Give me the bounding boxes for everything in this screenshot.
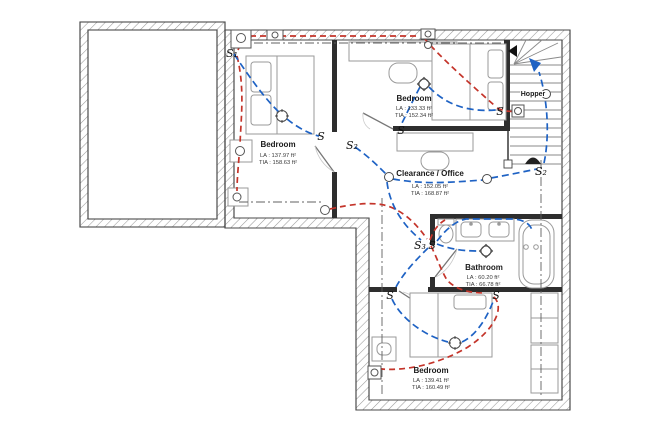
outlet-icon: [267, 30, 283, 40]
bed-bedroom-left: [246, 56, 314, 134]
switch-label: S: [317, 130, 325, 143]
svg-text:LA : 133.33 ft²: LA : 133.33 ft²: [396, 106, 432, 112]
outlet-icon: [236, 147, 245, 156]
svg-text:Bedroom: Bedroom: [413, 366, 448, 375]
switch-label: S₂: [535, 165, 547, 178]
switch-label: S₃: [414, 239, 426, 252]
switch-label: S: [496, 105, 504, 118]
svg-text:Bathroom: Bathroom: [465, 263, 503, 272]
wardrobe: [531, 293, 558, 393]
junction-icon: [483, 175, 492, 184]
switch-label: S: [386, 289, 394, 302]
switch-label: S: [428, 239, 436, 252]
svg-text:TIA : 66.78 ft²: TIA : 66.78 ft²: [466, 282, 501, 288]
switch-label: S: [397, 124, 405, 137]
desk-bedroom-bottom: [372, 337, 396, 361]
switch-label: S₁: [226, 47, 238, 60]
outlet-icon: [368, 366, 381, 379]
outlet-icon: [233, 193, 241, 201]
bathtub: [519, 220, 554, 288]
switch-label: S₂: [346, 139, 358, 152]
svg-text:Clearance / Office: Clearance / Office: [396, 169, 464, 178]
svg-text:LA : 137.97 ft²: LA : 137.97 ft²: [260, 153, 296, 159]
outlet-icon: [321, 206, 330, 215]
junction-icon: [385, 173, 394, 182]
outlet-icon: [231, 30, 251, 48]
svg-text:TIA : 152.34 ft²: TIA : 152.34 ft²: [395, 113, 433, 119]
ceiling-light-icon: [480, 245, 493, 258]
vanity: [456, 219, 514, 241]
svg-text:LA : 139.41 ft²: LA : 139.41 ft²: [413, 378, 449, 384]
room-label-bedroom-left: Bedroom LA : 137.97 ft² TIA : 158.63 ft²: [259, 140, 297, 166]
svg-text:TIA : 158.63 ft²: TIA : 158.63 ft²: [259, 160, 297, 166]
stairs: [504, 40, 561, 168]
room-label-bedroom-top: Bedroom LA : 133.33 ft² TIA : 152.34 ft²: [395, 94, 433, 119]
desk-office: [397, 133, 473, 170]
svg-text:TIA : 168.87 ft²: TIA : 168.87 ft²: [411, 191, 449, 197]
floor-plan-drawing: S₁ S S₂ S S S₂ S₃ S S S Bedroom LA : 137…: [0, 0, 650, 424]
room-label-bedroom-bottom: Bedroom LA : 139.41 ft² TIA : 160.49 ft²: [412, 366, 450, 391]
svg-text:TIA : 160.49 ft²: TIA : 160.49 ft²: [412, 385, 450, 391]
svg-text:Bedroom: Bedroom: [260, 140, 295, 149]
svg-text:Bedroom: Bedroom: [396, 94, 431, 103]
stair-direction-marker: [525, 158, 541, 165]
room-label-bathroom: Bathroom LA : 60.20 ft² TIA : 66.78 ft²: [465, 263, 503, 288]
svg-text:LA : 152.05 ft²: LA : 152.05 ft²: [412, 184, 448, 190]
floor-plan-page: S₁ S S₂ S S S₂ S₃ S S S Bedroom LA : 137…: [0, 0, 650, 424]
svg-text:LA : 60.20 ft²: LA : 60.20 ft²: [467, 275, 500, 281]
outlet-icon: [512, 105, 524, 117]
switch-label: S: [492, 289, 500, 302]
room-label-hopper: Hopper: [521, 91, 546, 98]
